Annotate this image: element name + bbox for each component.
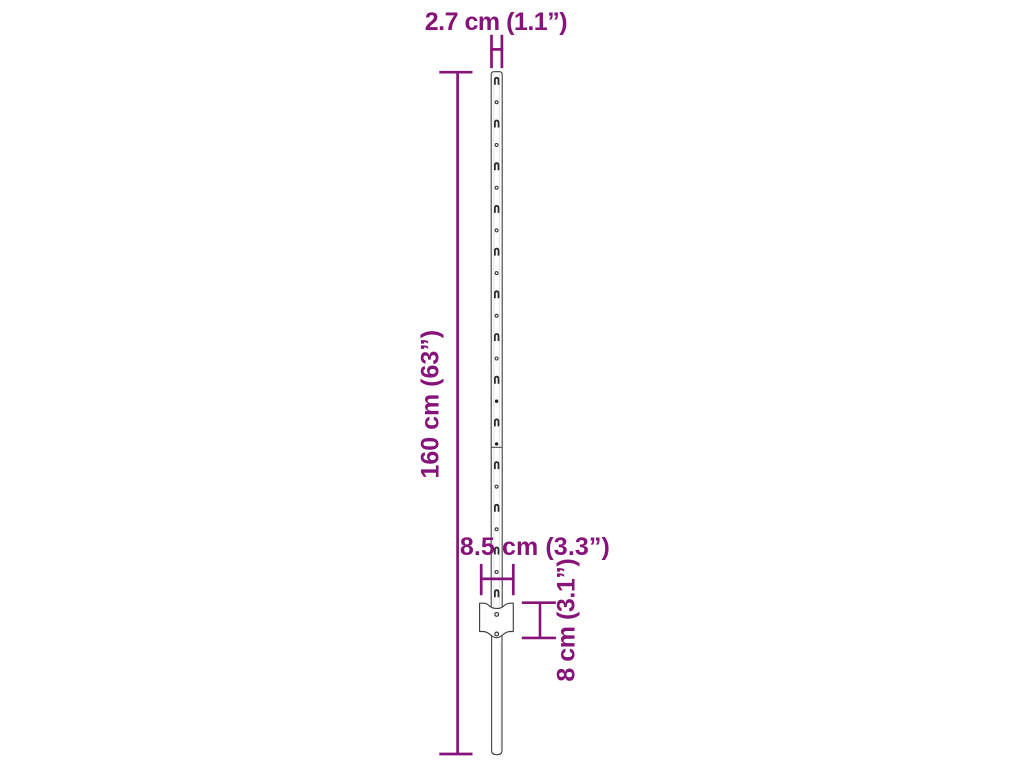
svg-text:2.7 cm (1.1”): 2.7 cm (1.1”) — [425, 8, 567, 36]
svg-text:8 cm (3.1”): 8 cm (3.1”) — [552, 559, 580, 682]
svg-text:160 cm (63”): 160 cm (63”) — [417, 330, 445, 479]
svg-text:8.5 cm (3.3”): 8.5 cm (3.3”) — [460, 533, 610, 561]
